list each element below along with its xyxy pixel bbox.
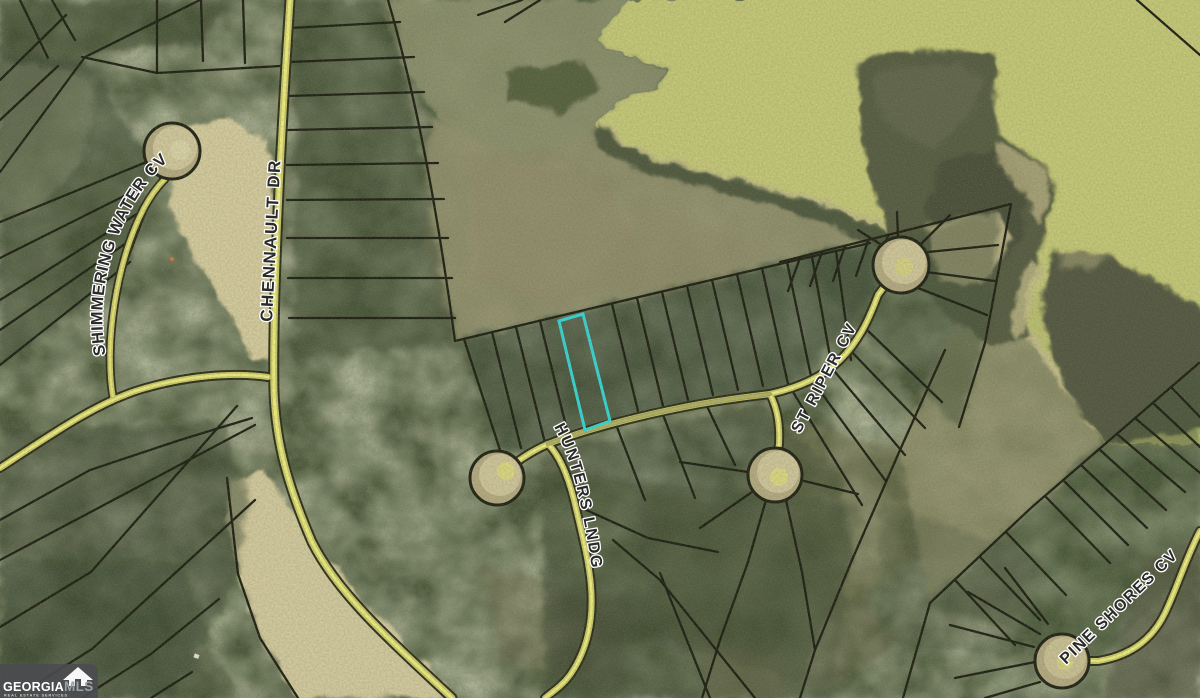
svg-text:REAL ESTATE SERVICES: REAL ESTATE SERVICES	[4, 694, 68, 698]
svg-text:MLS: MLS	[64, 679, 94, 694]
svg-text:GEORGIA: GEORGIA	[3, 680, 64, 694]
